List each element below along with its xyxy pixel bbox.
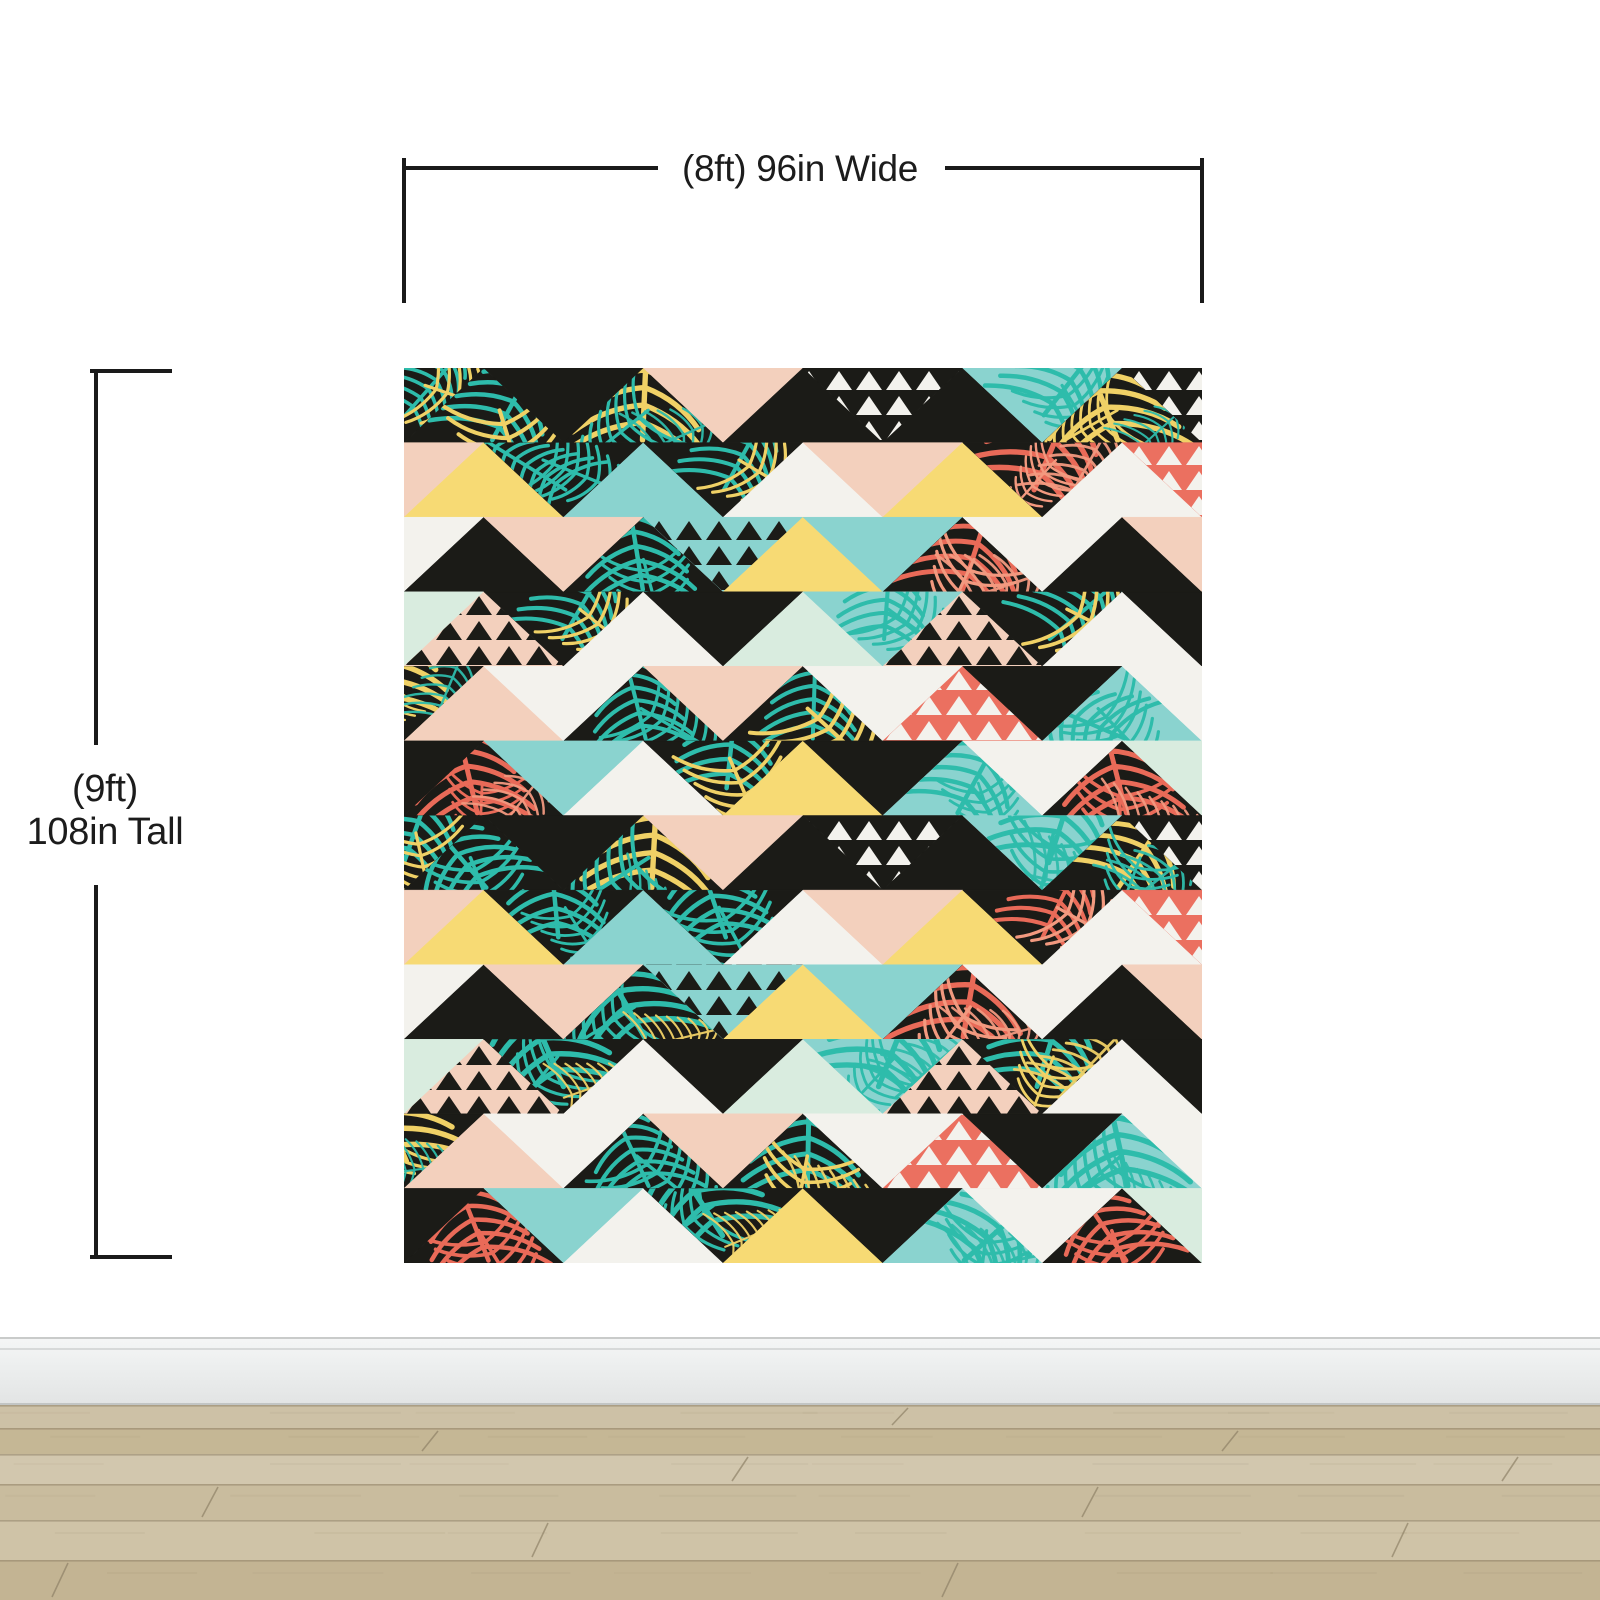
wood-floor — [0, 1405, 1600, 1600]
height-dimension-label-line1: (9ft) — [0, 768, 210, 811]
width-dimension-label: (8ft) 96in Wide — [682, 148, 918, 190]
product-mockup-scene: (8ft) 96in Wide (9ft) 108in Tall — [0, 0, 1600, 1600]
width-dimension-tick-right — [1200, 158, 1204, 303]
width-dimension-line-left — [406, 166, 658, 170]
height-dimension-line-top — [94, 373, 98, 745]
height-dimension-line-bottom — [94, 885, 98, 1255]
wallpaper-mural — [404, 368, 1202, 1263]
width-dimension-line-right — [945, 166, 1200, 170]
height-dimension-tick-top — [90, 369, 172, 373]
height-dimension-tick-bottom — [90, 1255, 172, 1259]
height-dimension-label-line2: 108in Tall — [0, 811, 210, 854]
height-dimension-label: (9ft) 108in Tall — [0, 768, 210, 854]
baseboard — [0, 1337, 1600, 1405]
width-dimension-tick-left — [402, 158, 406, 303]
